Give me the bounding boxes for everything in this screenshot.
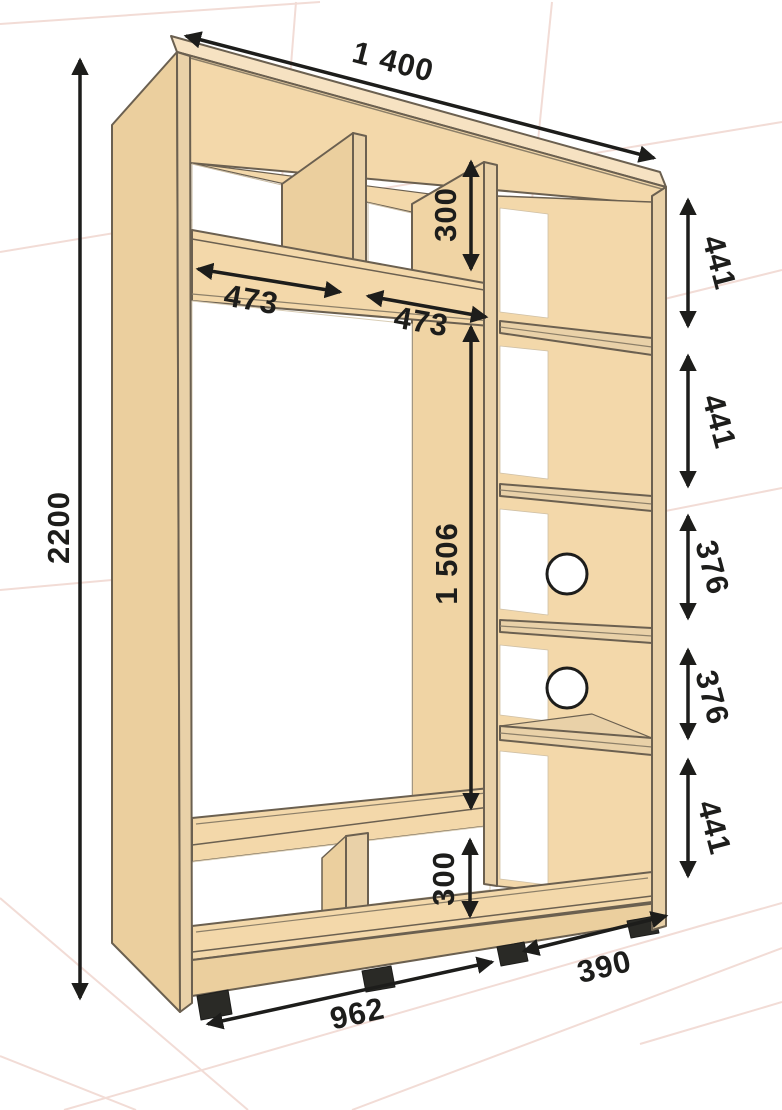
center-partition-front-edge xyxy=(484,162,497,886)
rod-hole-lower xyxy=(547,668,587,708)
right-column-opening-4 xyxy=(500,645,548,721)
wardrobe-drawing xyxy=(0,0,782,1110)
dim-label-top-height: 300 xyxy=(430,187,461,242)
right-column-opening-5 xyxy=(500,751,548,885)
hanging-section-opening xyxy=(192,301,412,830)
left-panel-front-edge xyxy=(177,52,192,1012)
right-panel-front-edge xyxy=(652,187,666,930)
right-column-opening-1 xyxy=(500,208,548,318)
right-column-opening-3 xyxy=(500,509,548,615)
dim-label-hanging-height: 1 506 xyxy=(431,522,462,605)
foot-1 xyxy=(197,990,232,1020)
rod-hole-upper xyxy=(547,554,587,594)
bottom-divider-front-edge xyxy=(346,833,368,914)
wardrobe-carcass xyxy=(112,36,666,1020)
diagram-canvas: 1 400 2200 473 473 300 1 506 300 441 441… xyxy=(0,0,782,1110)
dim-label-overall-height: 2200 xyxy=(43,491,74,564)
top-divider-front-edge xyxy=(353,133,366,276)
left-side-panel xyxy=(112,52,180,1012)
dim-label-bottom-height: 300 xyxy=(428,851,459,906)
dim-label-top-right-width: 473 xyxy=(392,301,451,341)
dim-label-top-left-width: 473 xyxy=(222,279,281,319)
right-column-opening-2 xyxy=(500,346,548,479)
